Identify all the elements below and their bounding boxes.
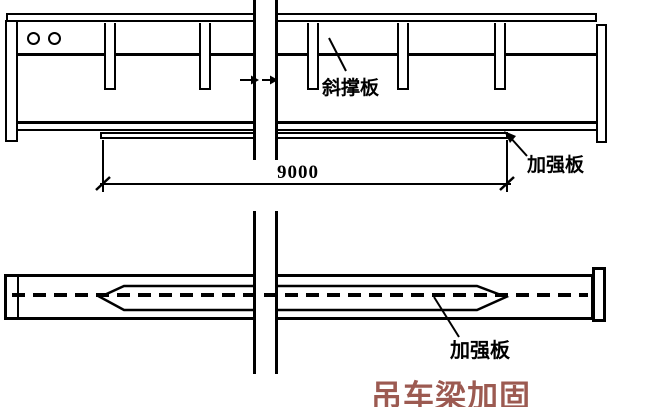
left-end-plate-plan <box>17 277 19 317</box>
right-end-plate-plan <box>592 267 606 322</box>
reinforcement-plate-elevation <box>100 132 508 139</box>
reinforcement-plate-label: 加强板 <box>527 150 584 177</box>
reinforcement-plate-label: 加强板 <box>450 334 510 363</box>
crane-beam-reinforcement-diagram: 9000 斜撑板 加强板 加强板 <box>0 0 660 407</box>
reinforcement-plate-plan <box>0 0 660 407</box>
stiffener <box>199 23 211 90</box>
bolt-hole <box>48 32 61 45</box>
beam-centerline <box>12 293 588 297</box>
dimension-value: 9000 <box>277 162 319 184</box>
top-flange <box>6 13 597 22</box>
stiffener <box>104 23 116 90</box>
bottom-flange <box>18 121 597 131</box>
stiffener <box>397 23 409 90</box>
brace-plate-label: 斜撑板 <box>322 73 379 100</box>
annotation-overlay <box>0 0 660 407</box>
diagram-title: 吊车梁加固 <box>371 371 531 407</box>
stiffener <box>494 23 506 90</box>
bolt-hole <box>27 32 40 45</box>
beam-outline-plan <box>4 274 594 320</box>
column-elevation <box>253 0 278 160</box>
right-end-plate <box>596 24 607 143</box>
stiffener <box>307 23 319 90</box>
left-end-plate <box>5 20 18 142</box>
